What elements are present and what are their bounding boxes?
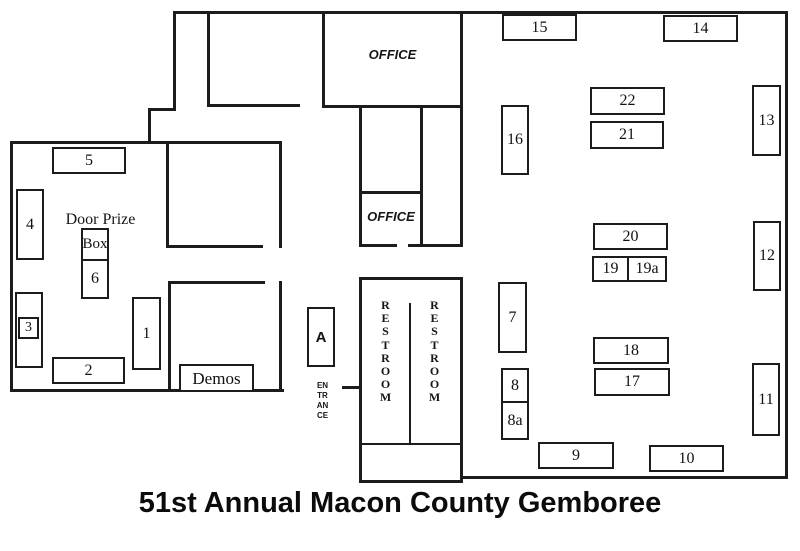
wall-hall-right [420,105,423,247]
booth-19a-label: 19a [635,261,658,277]
wall-innerroom2-left [168,281,171,392]
booth-12: 12 [753,221,781,291]
entrance-label: ENTRANCE [316,381,329,421]
booth-14: 14 [663,15,738,42]
wall-top [173,11,788,14]
booth-3: 3 [18,317,39,339]
booth-18: 18 [593,337,669,364]
wall-leftbldg-top [10,141,282,144]
restroom-left-label: RESTROOM [379,299,392,405]
restroom-right-label: RESTROOM [428,299,441,405]
wall-innerroom1-right [279,141,282,248]
booth-4-label: 4 [26,217,34,233]
wall-hall-left [359,105,362,247]
booth-4: 4 [16,189,44,260]
wall-center-upper [460,11,463,245]
booth-22: 22 [590,87,665,115]
wall-small-office-top [359,191,423,194]
booth-19a: 19a [627,256,667,282]
wall-innerroom2-top [168,281,265,284]
wall-office-left [322,11,325,106]
booth-13-label: 13 [759,113,775,129]
wall-innerroom1-bottom [166,245,263,248]
wall-entrance-stub [342,386,361,389]
entrance-marker-a-label: A [316,330,327,345]
page-title: 51st Annual Macon County Gemboree [0,487,800,520]
booth-1-label: 1 [143,326,151,342]
wall-small-office-bottom-right [408,244,463,247]
door-prize-box-label: Box [83,237,108,252]
booth-10-label: 10 [679,451,695,467]
booth-12-label: 12 [759,248,775,264]
booth-6: 6 [81,259,109,299]
booth-22-label: 22 [620,93,636,109]
booth-7-label: 7 [509,310,517,326]
booth-9-label: 9 [572,448,580,464]
wall-small-office-bottom-left [359,244,397,247]
booth-8: 8 [501,368,529,403]
booth-8a: 8a [501,401,529,440]
booth-10: 10 [649,445,724,472]
booth-15: 15 [502,14,577,41]
wall-right [785,11,788,479]
entrance-marker-a: A [307,307,335,367]
booth-16: 16 [501,105,529,175]
booth-19-label: 19 [603,261,619,277]
wall-restroom-shelf [359,443,463,445]
wall-office-bottom [322,105,463,108]
booth-3-label: 3 [25,321,32,335]
door-prize-label: Door Prize [58,211,143,229]
wall-storeroom-bottom [207,104,300,107]
booth-11-label: 11 [758,392,773,408]
wall-restroom-top [359,277,463,280]
booth-1: 1 [132,297,161,370]
booth-5-label: 5 [85,153,93,169]
booth-11: 11 [752,363,780,436]
demos-table: Demos [179,364,254,392]
wall-center-lower [460,277,463,482]
wall-right-hall-bottom [461,476,788,479]
booth-20-label: 20 [623,229,639,245]
booth-8a-label: 8a [507,413,522,429]
booth-20: 20 [593,223,668,250]
booth-16-label: 16 [507,132,523,148]
wall-storeroom-left [207,11,210,106]
wall-restroom-bottom [359,480,463,483]
booth-6-label: 6 [91,271,99,287]
booth-5: 5 [52,147,126,174]
booth-2: 2 [52,357,125,384]
booth-9: 9 [538,442,614,469]
door-prize-box: Box [81,228,109,261]
office-main-label: OFFICE [340,47,445,62]
booth-14-label: 14 [693,21,709,37]
booth-7: 7 [498,282,527,353]
booth-21-label: 21 [619,127,635,143]
wall-innerroom2-right [279,281,282,392]
booth-15-label: 15 [532,20,548,36]
demos-label: Demos [192,370,240,387]
booth-18-label: 18 [623,343,639,359]
booth-21: 21 [590,121,664,149]
wall-restroom-divider [409,303,411,443]
wall-restroom-left [359,277,362,483]
wall-step-horizontal [148,108,176,111]
wall-innerroom1-left [166,141,169,248]
wall-leftbldg-left [10,141,13,391]
booth-17-label: 17 [624,374,640,390]
office-small-label: OFFICE [341,209,441,224]
booth-19: 19 [592,256,629,282]
wall-step-vertical-b [148,108,151,144]
booth-17: 17 [594,368,670,396]
booth-2-label: 2 [85,363,93,379]
floor-plan: OFFICE OFFICE RESTROOM RESTROOM ENTRANCE… [0,0,800,551]
booth-13: 13 [752,85,781,156]
wall-step-vertical-a [173,11,176,110]
booth-8-label: 8 [511,378,519,394]
